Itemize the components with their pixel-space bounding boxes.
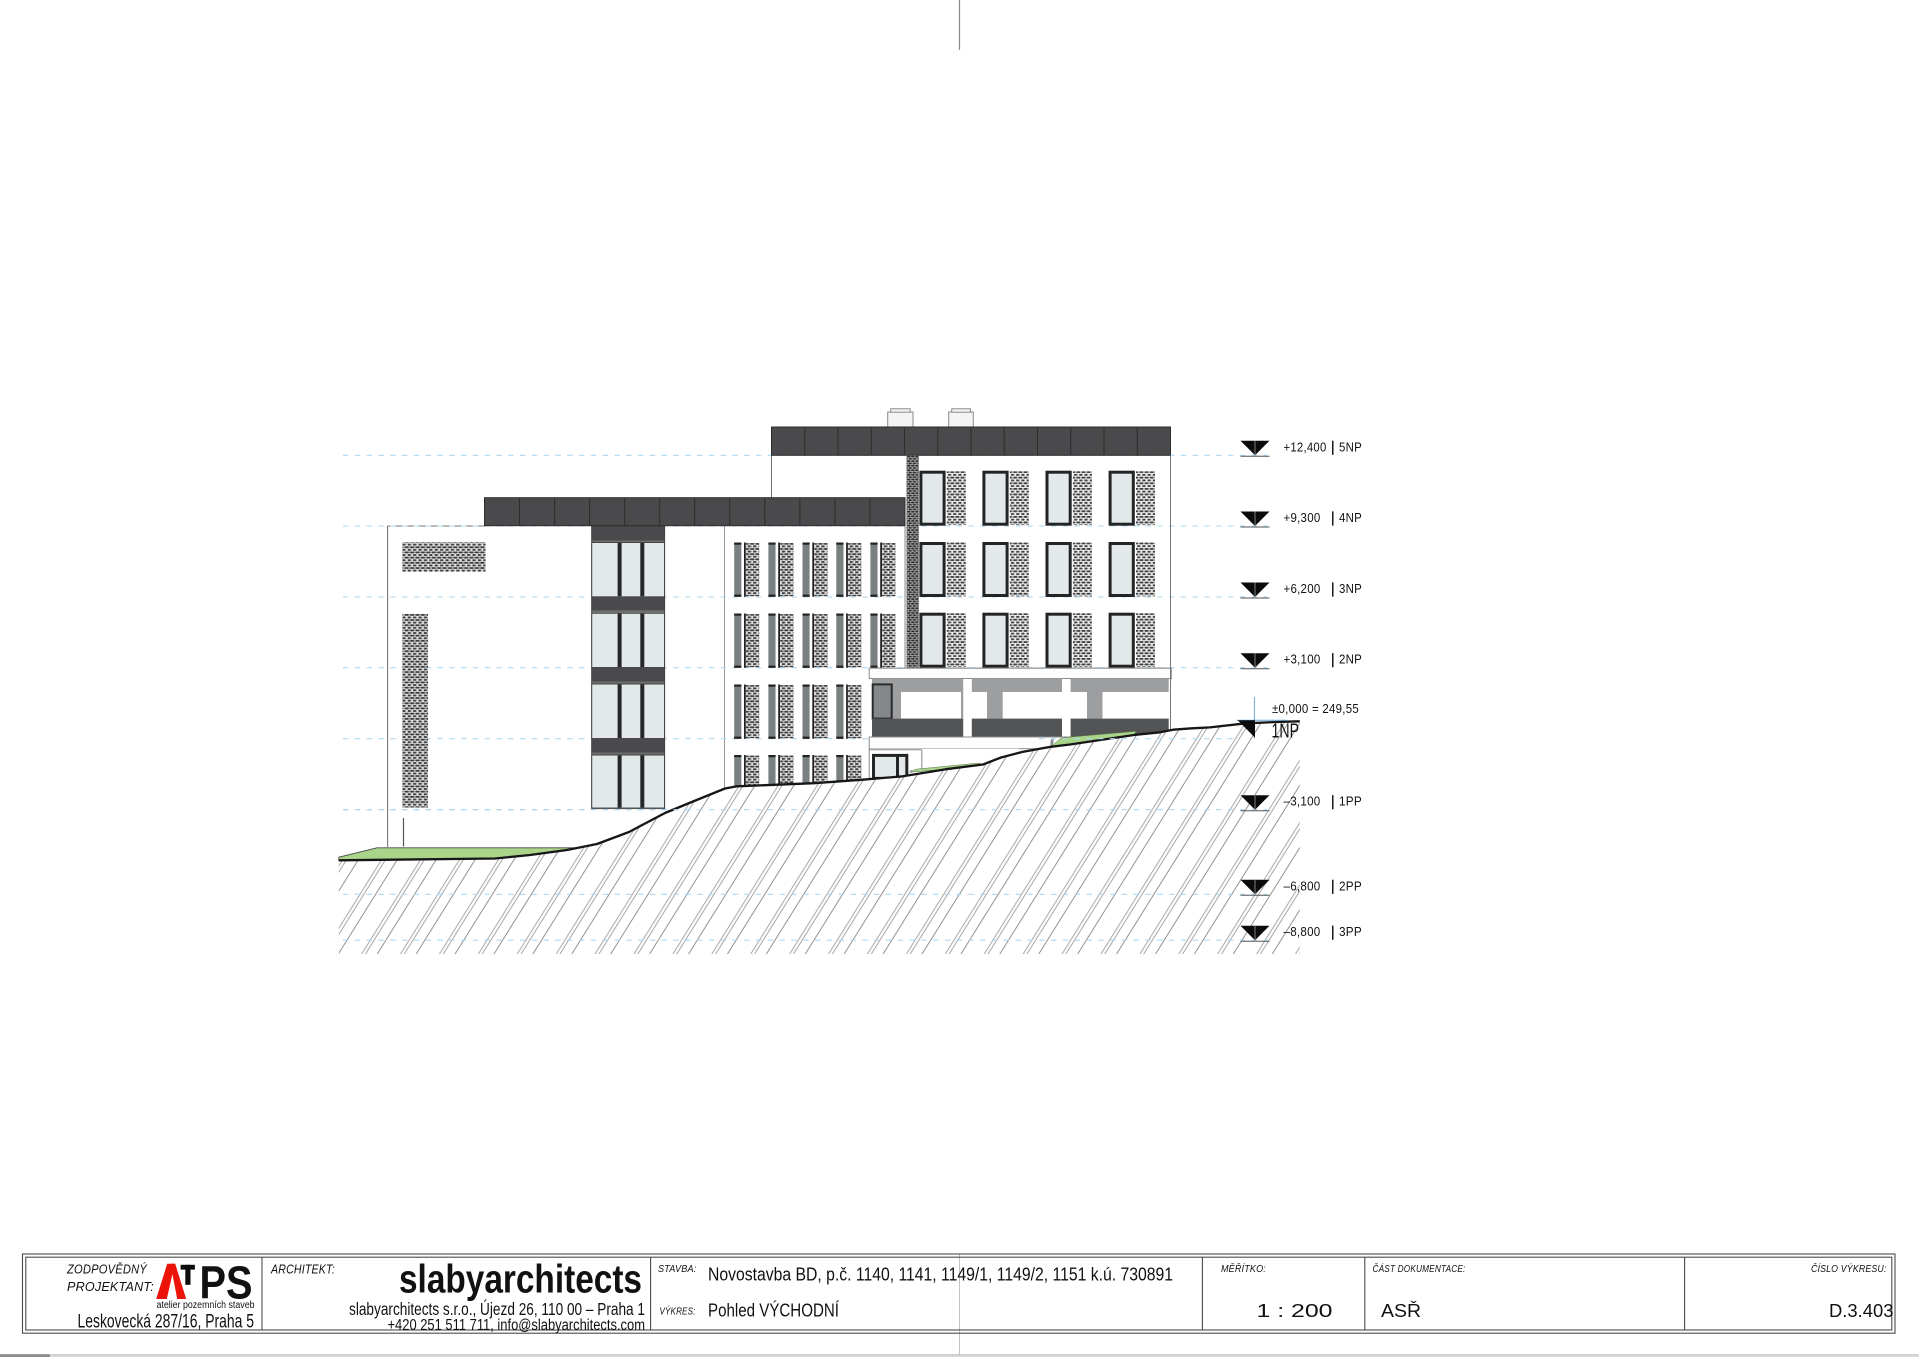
svg-text:slabyarchitects: slabyarchitects (399, 1258, 642, 1302)
svg-text:PROJEKTANT:: PROJEKTANT: (67, 1280, 154, 1294)
svg-text:5NP: 5NP (1339, 439, 1362, 454)
svg-text:±0,000 = 249,55: ±0,000 = 249,55 (1272, 701, 1359, 716)
svg-text:VÝKRES:: VÝKRES: (660, 1307, 696, 1318)
svg-text:2PP: 2PP (1339, 878, 1362, 893)
svg-text:STAVBA:: STAVBA: (658, 1264, 697, 1275)
svg-text:–6,800: –6,800 (1284, 878, 1321, 893)
svg-text:1NP: 1NP (1272, 720, 1300, 743)
svg-text:3NP: 3NP (1339, 581, 1362, 596)
svg-text:ČÍSLO VÝKRESU:: ČÍSLO VÝKRESU: (1811, 1264, 1887, 1275)
svg-text:+9,300: +9,300 (1284, 510, 1321, 525)
svg-text:D.3.403: D.3.403 (1829, 1300, 1894, 1321)
svg-text:ZODPOVĚDNÝ: ZODPOVĚDNÝ (66, 1262, 148, 1277)
svg-text:ASŘ: ASŘ (1381, 1300, 1421, 1321)
svg-text:+420 251 511 711, info@slabyar: +420 251 511 711, info@slabyarchitects.c… (388, 1317, 646, 1334)
svg-text:3PP: 3PP (1339, 924, 1362, 939)
svg-text:4NP: 4NP (1339, 510, 1362, 525)
svg-text:ČÁST DOKUMENTACE:: ČÁST DOKUMENTACE: (1373, 1264, 1466, 1275)
svg-text:Pohled VÝCHODNÍ: Pohled VÝCHODNÍ (708, 1300, 840, 1321)
svg-text:slabyarchitects s.r.o., Újezd: slabyarchitects s.r.o., Újezd 26, 110 00… (349, 1298, 645, 1319)
svg-text:Leskovecká 287/16, Praha 5: Leskovecká 287/16, Praha 5 (78, 1312, 255, 1333)
svg-text:–3,100: –3,100 (1284, 794, 1321, 809)
svg-text:1PP: 1PP (1339, 794, 1362, 809)
svg-text:MĚŘÍTKO:: MĚŘÍTKO: (1221, 1264, 1266, 1275)
svg-text:1 : 200: 1 : 200 (1257, 1300, 1333, 1321)
svg-text:–8,800: –8,800 (1284, 924, 1321, 939)
svg-text:2NP: 2NP (1339, 652, 1362, 667)
svg-text:Novostavba BD, p.č. 1140, 1141: Novostavba BD, p.č. 1140, 1141, 1149/1, … (708, 1264, 1173, 1285)
svg-text:+3,100: +3,100 (1284, 652, 1321, 667)
svg-text:ARCHITEKT:: ARCHITEKT: (270, 1263, 335, 1277)
svg-text:+6,200: +6,200 (1284, 581, 1321, 596)
svg-text:+12,400: +12,400 (1284, 439, 1327, 454)
svg-text:atelier pozemních staveb: atelier pozemních staveb (157, 1300, 255, 1311)
